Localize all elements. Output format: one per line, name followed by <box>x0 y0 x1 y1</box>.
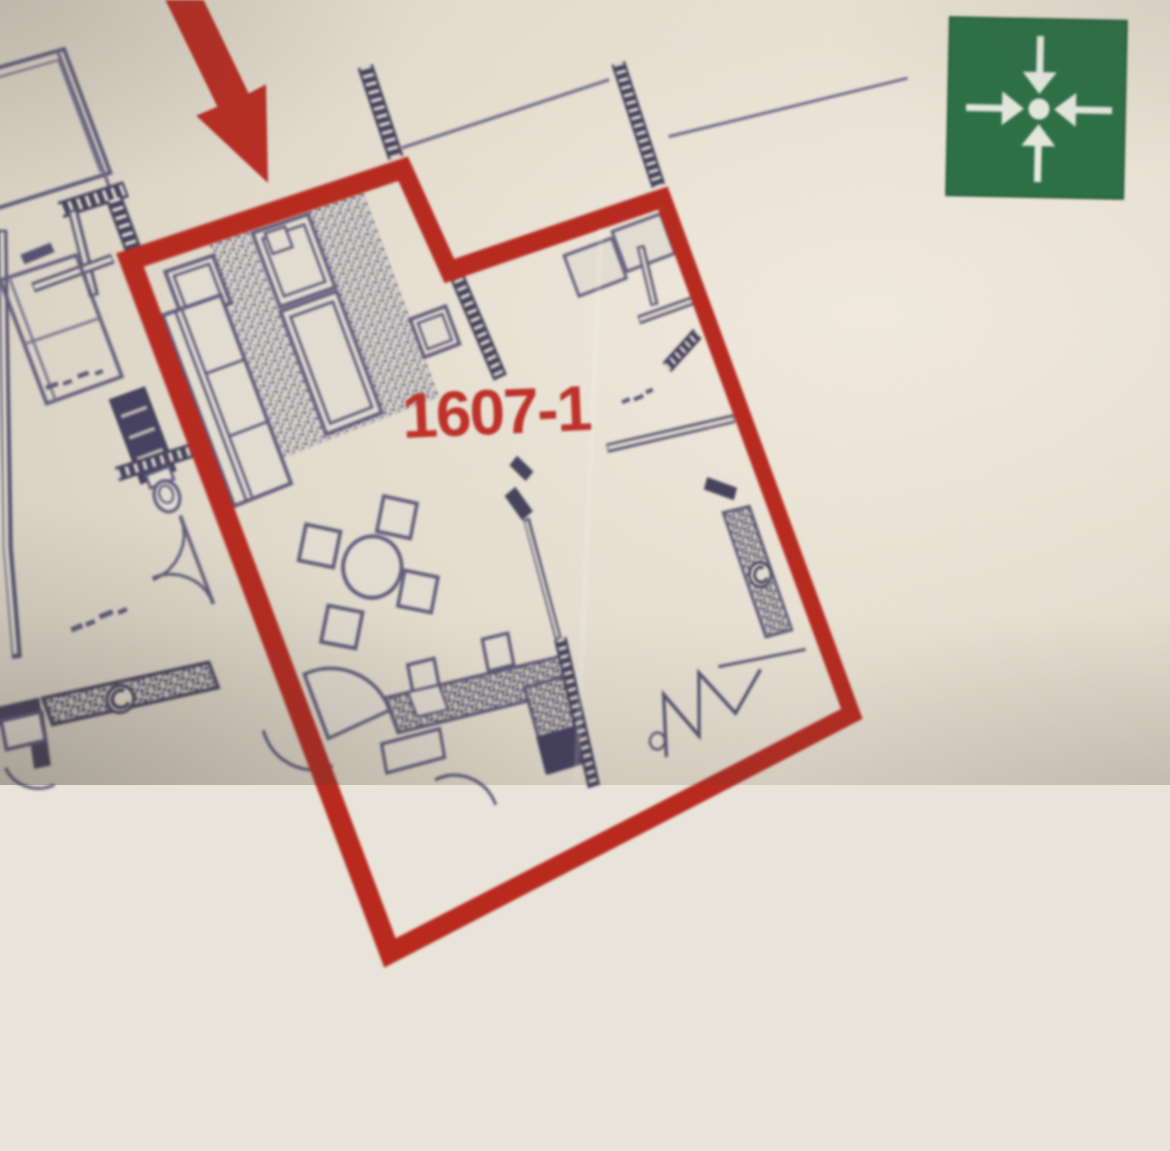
svg-text:1607-1: 1607-1 <box>400 372 592 452</box>
